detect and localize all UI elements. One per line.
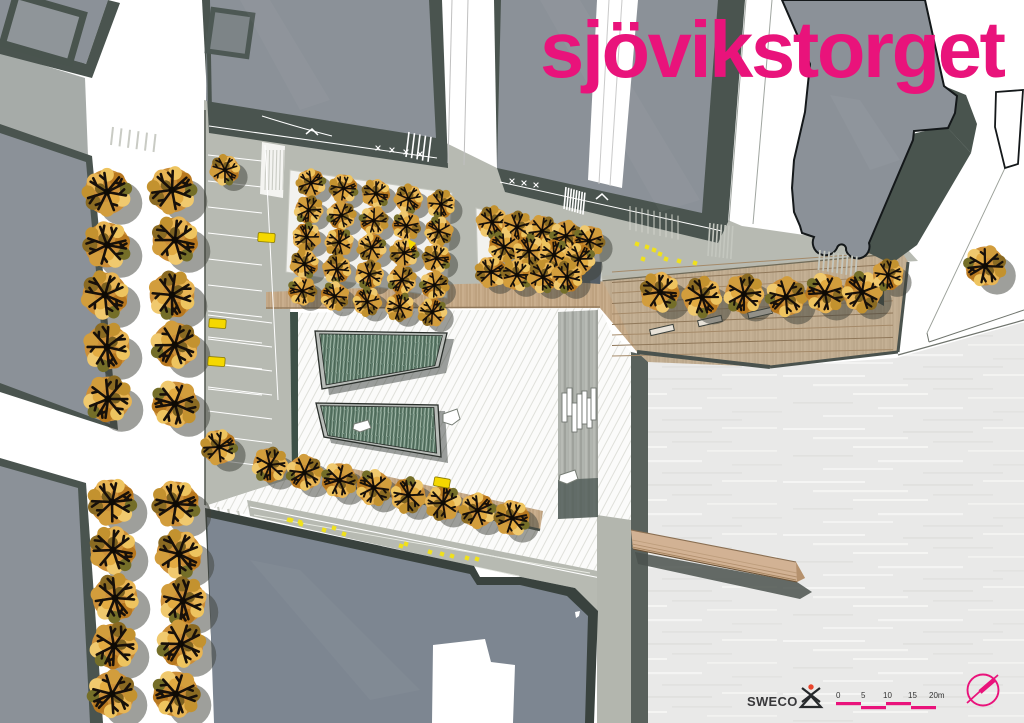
svg-text:SWECO: SWECO [747, 694, 798, 709]
svg-text:0: 0 [836, 691, 841, 700]
svg-text:20m: 20m [929, 691, 945, 700]
svg-text:5: 5 [861, 691, 866, 700]
svg-text:sjövikstorget: sjövikstorget [540, 5, 1006, 94]
svg-text:10: 10 [883, 691, 892, 700]
svg-text:15: 15 [908, 691, 917, 700]
